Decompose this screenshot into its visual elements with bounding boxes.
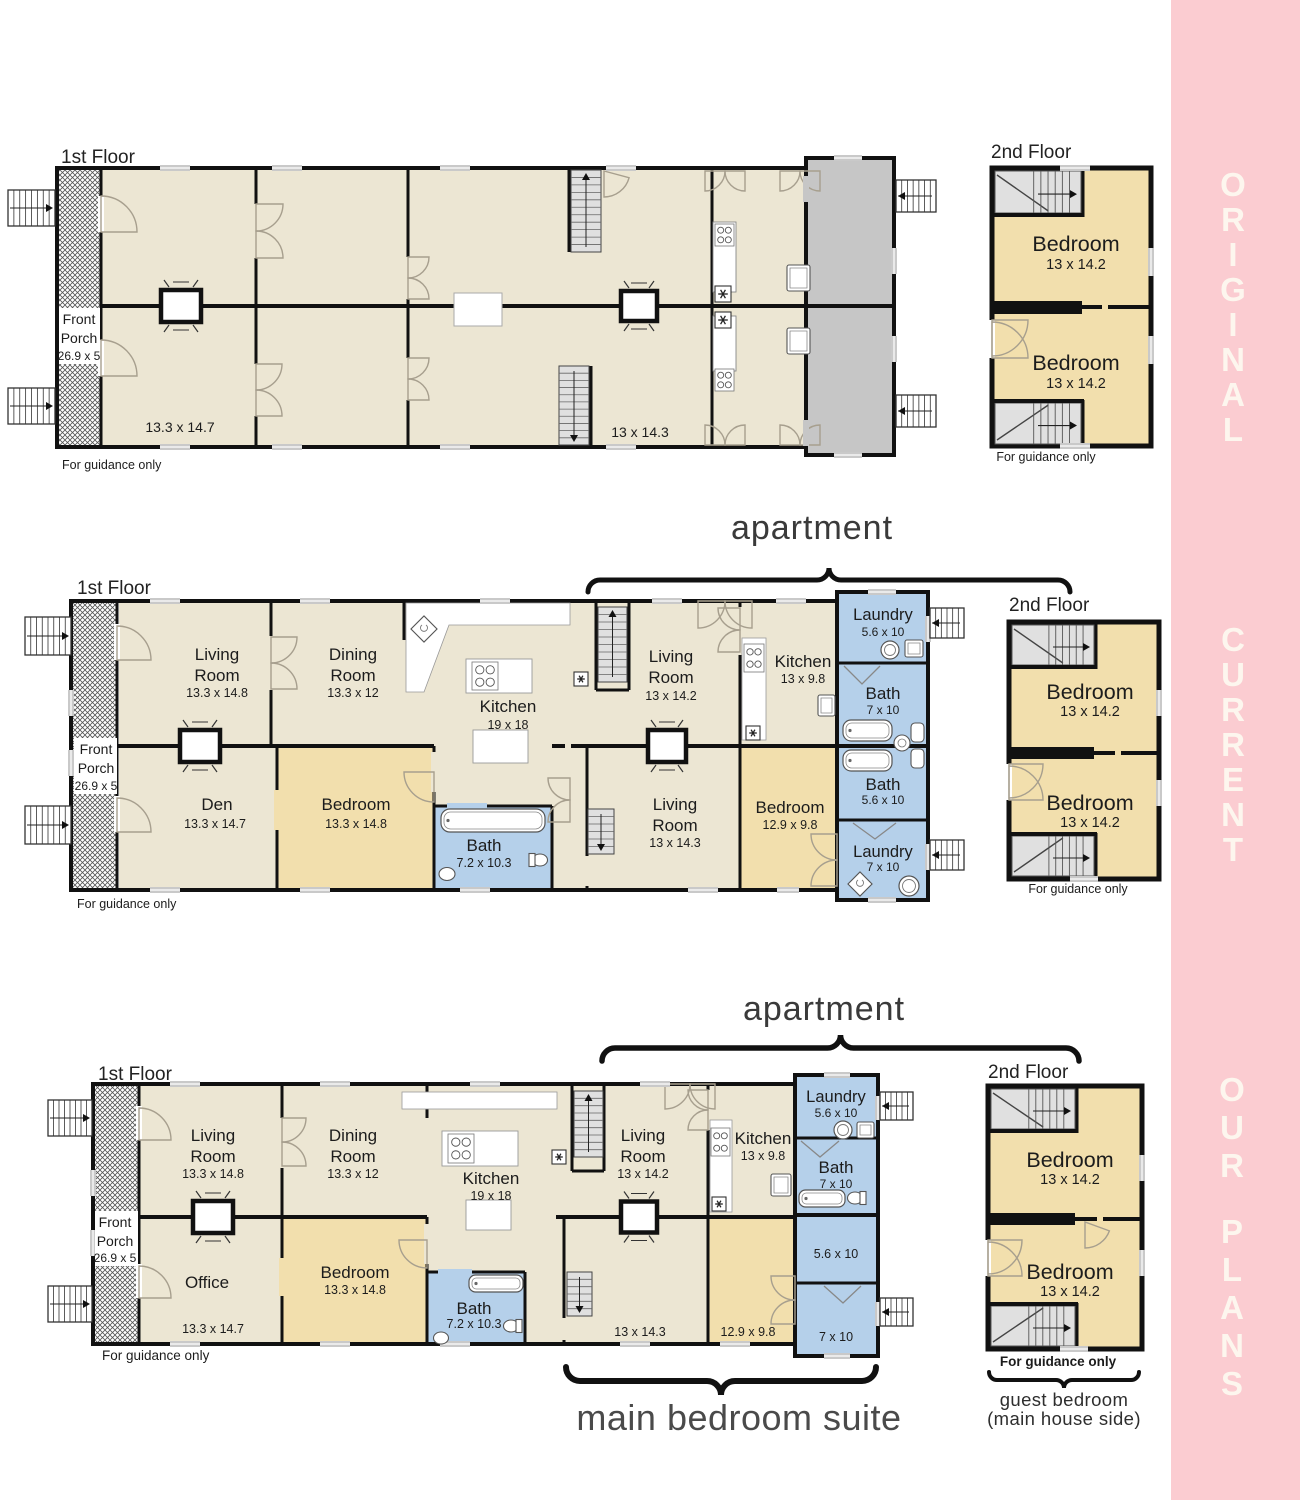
svg-text:Front: Front bbox=[99, 1214, 132, 1230]
svg-text:2nd Floor: 2nd Floor bbox=[991, 142, 1072, 163]
svg-text:Kitchen: Kitchen bbox=[480, 697, 537, 716]
svg-text:R: R bbox=[1220, 1147, 1244, 1184]
svg-text:L: L bbox=[1222, 1251, 1242, 1288]
svg-text:13 x 14.2: 13 x 14.2 bbox=[617, 1167, 668, 1181]
svg-text:13.3 x 14.7: 13.3 x 14.7 bbox=[182, 1322, 244, 1336]
svg-text:Dining: Dining bbox=[329, 645, 377, 664]
svg-text:Living: Living bbox=[649, 647, 693, 666]
svg-text:G: G bbox=[1220, 271, 1246, 308]
svg-text:Room: Room bbox=[194, 666, 239, 685]
svg-text:Living: Living bbox=[191, 1126, 235, 1145]
svg-text:For guidance only: For guidance only bbox=[996, 450, 1096, 464]
svg-text:13 x 14.3: 13 x 14.3 bbox=[649, 836, 700, 850]
svg-text:Room: Room bbox=[652, 816, 697, 835]
svg-text:Room: Room bbox=[330, 1147, 375, 1166]
svg-text:For guidance only: For guidance only bbox=[1028, 882, 1128, 896]
svg-text:13.3 x 14.8: 13.3 x 14.8 bbox=[182, 1167, 244, 1181]
svg-text:13.3 x 14.8: 13.3 x 14.8 bbox=[324, 1283, 386, 1297]
svg-text:P: P bbox=[1221, 1213, 1243, 1250]
svg-text:Kitchen: Kitchen bbox=[775, 652, 832, 671]
svg-text:I: I bbox=[1228, 236, 1237, 273]
svg-text:5.6 x 10: 5.6 x 10 bbox=[862, 793, 905, 807]
svg-text:7.2 x 10.3: 7.2 x 10.3 bbox=[447, 1317, 502, 1331]
svg-text:Room: Room bbox=[648, 668, 693, 687]
svg-text:(main house side): (main house side) bbox=[987, 1408, 1141, 1429]
svg-text:N: N bbox=[1220, 1327, 1244, 1364]
svg-text:For guidance only: For guidance only bbox=[77, 897, 177, 911]
svg-text:7 x 10: 7 x 10 bbox=[867, 860, 900, 874]
svg-text:12.9 x 9.8: 12.9 x 9.8 bbox=[721, 1325, 776, 1339]
svg-text:13.3 x 12: 13.3 x 12 bbox=[327, 686, 378, 700]
svg-text:For guidance only: For guidance only bbox=[102, 1348, 210, 1363]
svg-text:A: A bbox=[1220, 1289, 1244, 1326]
svg-text:Bath: Bath bbox=[457, 1299, 492, 1318]
svg-text:Laundry: Laundry bbox=[806, 1088, 866, 1106]
svg-text:Porch: Porch bbox=[78, 760, 115, 776]
svg-text:7 x 10: 7 x 10 bbox=[820, 1177, 853, 1191]
svg-text:13 x 14.2: 13 x 14.2 bbox=[1040, 1172, 1100, 1188]
svg-text:E: E bbox=[1222, 761, 1244, 798]
svg-text:A: A bbox=[1221, 376, 1245, 413]
svg-text:I: I bbox=[1228, 306, 1237, 343]
svg-text:13 x 9.8: 13 x 9.8 bbox=[741, 1149, 786, 1163]
svg-text:Bedroom: Bedroom bbox=[756, 798, 825, 817]
svg-text:1st Floor: 1st Floor bbox=[98, 1064, 173, 1085]
svg-text:Room: Room bbox=[330, 666, 375, 685]
svg-text:U: U bbox=[1220, 1109, 1244, 1146]
svg-text:5.6 x 10: 5.6 x 10 bbox=[815, 1106, 858, 1120]
svg-text:Bedroom: Bedroom bbox=[322, 795, 391, 814]
svg-text:Bedroom: Bedroom bbox=[1026, 1260, 1113, 1284]
svg-text:apartment: apartment bbox=[743, 990, 905, 1028]
svg-text:R: R bbox=[1221, 691, 1245, 728]
svg-text:Porch: Porch bbox=[61, 330, 98, 346]
svg-text:Kitchen: Kitchen bbox=[735, 1129, 792, 1148]
svg-text:Bedroom: Bedroom bbox=[1032, 232, 1119, 256]
svg-text:13.3 x 14.7: 13.3 x 14.7 bbox=[184, 817, 246, 831]
svg-text:13 x 14.2: 13 x 14.2 bbox=[1060, 704, 1120, 720]
svg-text:O: O bbox=[1219, 1071, 1245, 1108]
svg-text:Living: Living bbox=[653, 795, 697, 814]
svg-text:2nd Floor: 2nd Floor bbox=[1009, 595, 1090, 616]
svg-text:26.9 x 5: 26.9 x 5 bbox=[94, 1251, 137, 1265]
svg-text:R: R bbox=[1221, 201, 1245, 238]
svg-text:Office: Office bbox=[185, 1273, 229, 1292]
svg-text:N: N bbox=[1221, 341, 1245, 378]
svg-text:Room: Room bbox=[190, 1147, 235, 1166]
svg-text:7 x 10: 7 x 10 bbox=[867, 703, 900, 717]
svg-text:For guidance only: For guidance only bbox=[62, 458, 162, 472]
svg-text:R: R bbox=[1221, 726, 1245, 763]
svg-text:O: O bbox=[1220, 166, 1246, 203]
svg-text:Porch: Porch bbox=[97, 1233, 134, 1249]
svg-text:13 x 14.2: 13 x 14.2 bbox=[1046, 376, 1106, 392]
svg-text:26.9 x 5: 26.9 x 5 bbox=[75, 779, 118, 793]
svg-text:apartment: apartment bbox=[731, 509, 893, 547]
svg-text:12.9 x 9.8: 12.9 x 9.8 bbox=[763, 818, 818, 832]
svg-text:2nd Floor: 2nd Floor bbox=[988, 1062, 1069, 1083]
svg-text:Bedroom: Bedroom bbox=[1046, 680, 1133, 704]
svg-text:T: T bbox=[1223, 831, 1243, 868]
svg-text:13 x 14.2: 13 x 14.2 bbox=[1040, 1284, 1100, 1300]
svg-text:U: U bbox=[1221, 656, 1245, 693]
svg-text:1st Floor: 1st Floor bbox=[77, 578, 152, 599]
svg-text:Bedroom: Bedroom bbox=[1026, 1148, 1113, 1172]
svg-text:L: L bbox=[1223, 411, 1243, 448]
svg-text:13 x 14.2: 13 x 14.2 bbox=[1046, 257, 1106, 273]
svg-text:13 x 14.2: 13 x 14.2 bbox=[645, 689, 696, 703]
svg-text:Front: Front bbox=[63, 311, 96, 327]
svg-text:Bath: Bath bbox=[467, 836, 502, 855]
svg-text:13 x 14.3: 13 x 14.3 bbox=[611, 424, 669, 440]
svg-text:19 x 18: 19 x 18 bbox=[470, 1189, 511, 1203]
svg-text:7.2 x 10.3: 7.2 x 10.3 bbox=[457, 856, 512, 870]
svg-text:Room: Room bbox=[620, 1147, 665, 1166]
svg-text:S: S bbox=[1221, 1365, 1243, 1402]
svg-text:Dining: Dining bbox=[329, 1126, 377, 1145]
svg-text:Living: Living bbox=[621, 1126, 665, 1145]
svg-text:For guidance only: For guidance only bbox=[1000, 1354, 1117, 1369]
svg-text:Bath: Bath bbox=[819, 1158, 854, 1177]
svg-text:Bath: Bath bbox=[866, 775, 901, 794]
svg-text:main bedroom suite: main bedroom suite bbox=[576, 1397, 901, 1438]
svg-text:Kitchen: Kitchen bbox=[463, 1169, 520, 1188]
svg-text:Bedroom: Bedroom bbox=[1046, 791, 1133, 815]
svg-text:guest bedroom: guest bedroom bbox=[1000, 1389, 1129, 1410]
svg-text:Laundry: Laundry bbox=[853, 606, 913, 624]
svg-text:5.6 x 10: 5.6 x 10 bbox=[862, 625, 905, 639]
svg-text:C: C bbox=[1221, 621, 1245, 658]
svg-text:Bedroom: Bedroom bbox=[1032, 351, 1119, 375]
svg-text:1st Floor: 1st Floor bbox=[61, 147, 136, 168]
svg-text:7 x 10: 7 x 10 bbox=[819, 1330, 853, 1344]
svg-text:13.3 x 14.7: 13.3 x 14.7 bbox=[145, 419, 214, 435]
svg-text:Living: Living bbox=[195, 645, 239, 664]
svg-text:Bedroom: Bedroom bbox=[321, 1263, 390, 1282]
svg-text:13 x 14.3: 13 x 14.3 bbox=[614, 1325, 665, 1339]
svg-text:13 x 14.2: 13 x 14.2 bbox=[1060, 815, 1120, 831]
svg-text:5.6 x 10: 5.6 x 10 bbox=[814, 1247, 859, 1261]
svg-text:Bath: Bath bbox=[866, 684, 901, 703]
svg-text:Laundry: Laundry bbox=[853, 843, 913, 861]
svg-text:Den: Den bbox=[201, 795, 232, 814]
svg-text:Front: Front bbox=[80, 741, 113, 757]
svg-text:13.3 x 14.8: 13.3 x 14.8 bbox=[325, 817, 387, 831]
svg-text:N: N bbox=[1221, 796, 1245, 833]
svg-text:13 x 9.8: 13 x 9.8 bbox=[781, 672, 826, 686]
svg-text:13.3 x 12: 13.3 x 12 bbox=[327, 1167, 378, 1181]
svg-text:26.9 x 5: 26.9 x 5 bbox=[58, 349, 101, 363]
svg-text:13.3 x 14.8: 13.3 x 14.8 bbox=[186, 686, 248, 700]
svg-text:19 x 18: 19 x 18 bbox=[487, 718, 528, 732]
